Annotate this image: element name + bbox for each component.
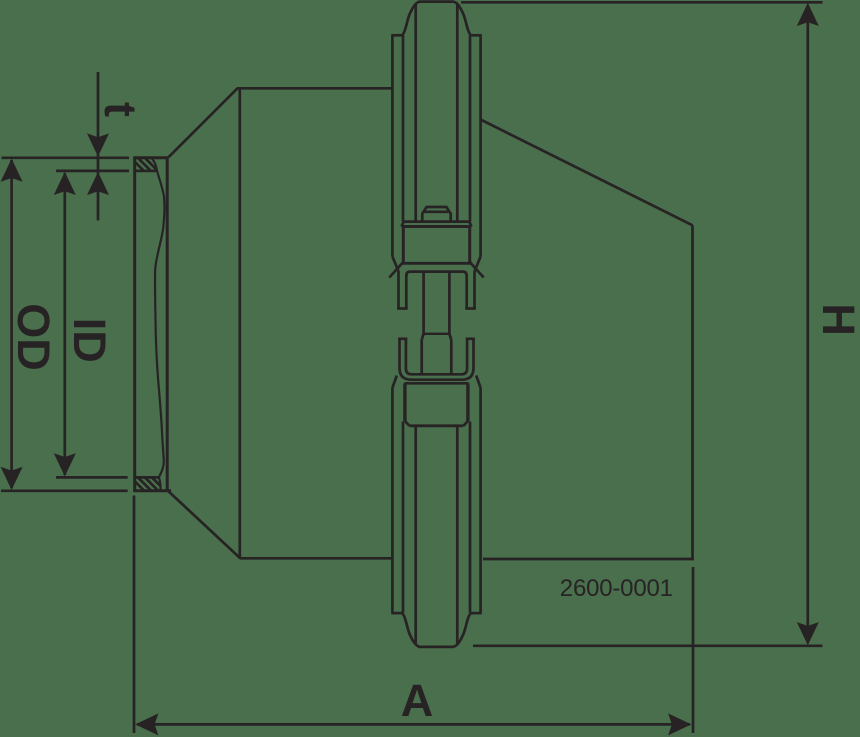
svg-text:ID: ID [64, 318, 115, 363]
svg-text:A: A [401, 675, 434, 726]
svg-text:2600-0001: 2600-0001 [560, 575, 673, 602]
svg-text:t: t [95, 102, 146, 117]
svg-text:OD: OD [8, 303, 59, 371]
svg-text:H: H [813, 303, 860, 336]
